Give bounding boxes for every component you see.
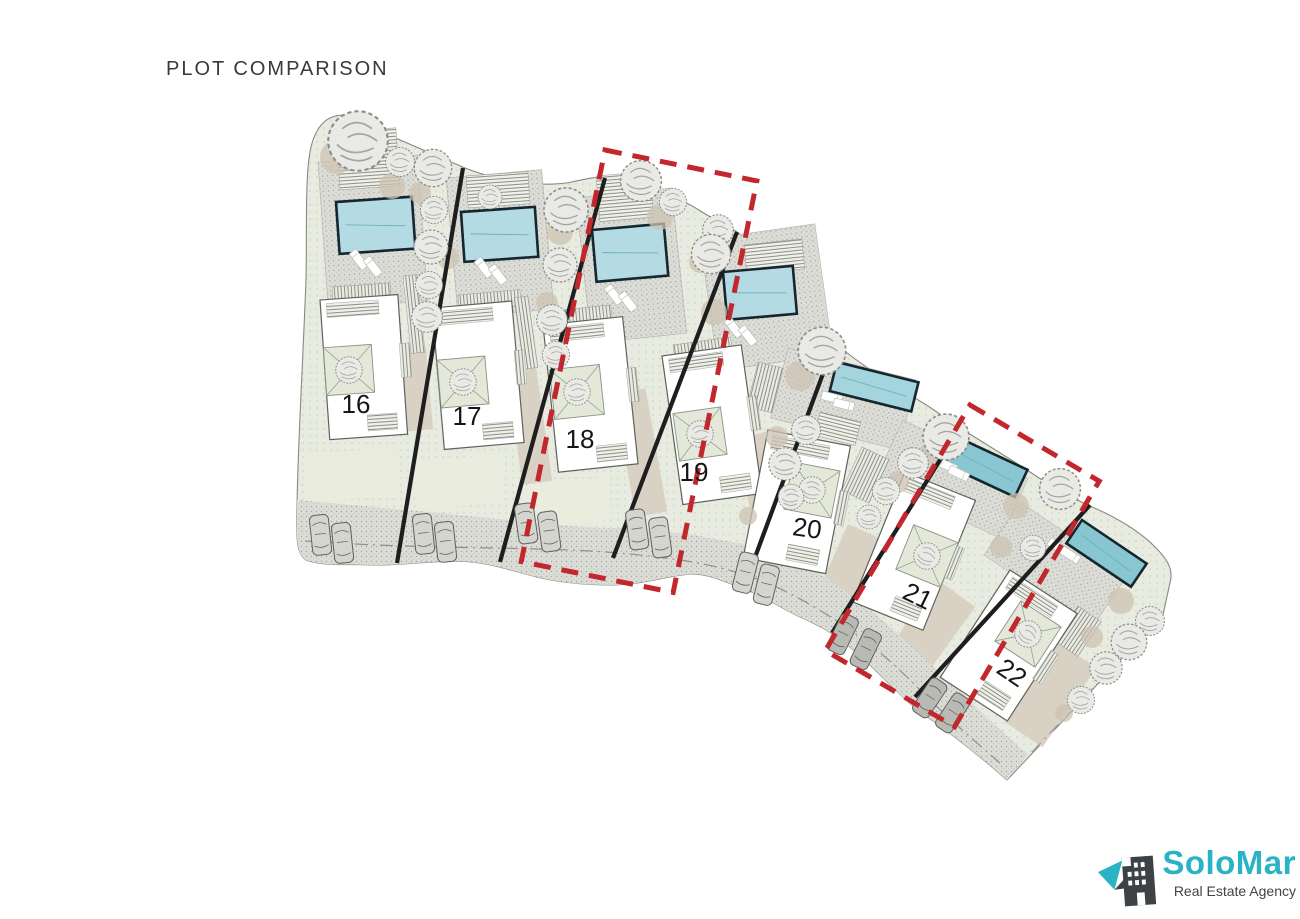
courtyard-tree-plot-16	[323, 344, 374, 395]
tree-icon	[537, 305, 568, 336]
shrub-bed	[1081, 626, 1103, 648]
lawn	[412, 454, 504, 509]
plot-number-label: 16	[342, 389, 371, 419]
tree-icon	[412, 302, 443, 333]
plot-number-label: 20	[791, 511, 824, 545]
tree-icon	[1020, 535, 1046, 561]
shrub-bed	[766, 426, 788, 448]
tree-icon	[414, 230, 448, 264]
lawn	[524, 477, 612, 528]
tree-icon	[544, 188, 588, 232]
shrub-bed	[990, 536, 1012, 558]
building-logo-icon	[1096, 846, 1158, 912]
lawn	[306, 448, 397, 502]
shrub-bed	[1003, 493, 1029, 519]
tree-icon	[769, 448, 801, 480]
site-plan: 16171819202122	[0, 0, 1300, 919]
page-title: PLOT COMPARISON	[166, 58, 389, 81]
tree-icon	[478, 185, 502, 209]
tree-icon	[691, 234, 730, 273]
plot-number-label: 19	[680, 457, 709, 487]
car-icon	[331, 522, 354, 564]
shrub-bed	[1108, 588, 1134, 614]
tree-icon	[542, 341, 569, 368]
tree-icon	[414, 149, 451, 186]
logo-name: SoloMar	[1162, 846, 1296, 881]
brand-logo: SoloMar Real Estate Agency	[1096, 846, 1296, 912]
tree-icon	[792, 416, 821, 445]
tree-icon	[328, 111, 388, 171]
tree-icon	[420, 196, 447, 223]
tree-icon	[857, 505, 881, 529]
tree-icon	[621, 161, 662, 202]
tree-icon	[1067, 686, 1094, 713]
tree-icon	[872, 477, 899, 504]
car-icon	[434, 521, 457, 563]
tree-icon	[386, 148, 415, 177]
tree-icon	[1090, 652, 1122, 684]
car-icon	[412, 513, 435, 555]
shrub-bed	[739, 507, 757, 525]
plot-number-label: 18	[566, 424, 595, 454]
tree-icon	[1111, 624, 1147, 660]
plot-number-label: 17	[453, 401, 482, 431]
tree-icon	[1040, 469, 1081, 510]
tree-icon	[543, 248, 577, 282]
tree-icon	[659, 188, 686, 215]
tree-icon	[415, 271, 442, 298]
logo-tagline: Real Estate Agency	[1174, 883, 1296, 899]
tree-icon	[898, 448, 929, 479]
car-icon	[309, 514, 332, 556]
tree-icon	[798, 327, 846, 375]
tree-icon	[778, 484, 804, 510]
